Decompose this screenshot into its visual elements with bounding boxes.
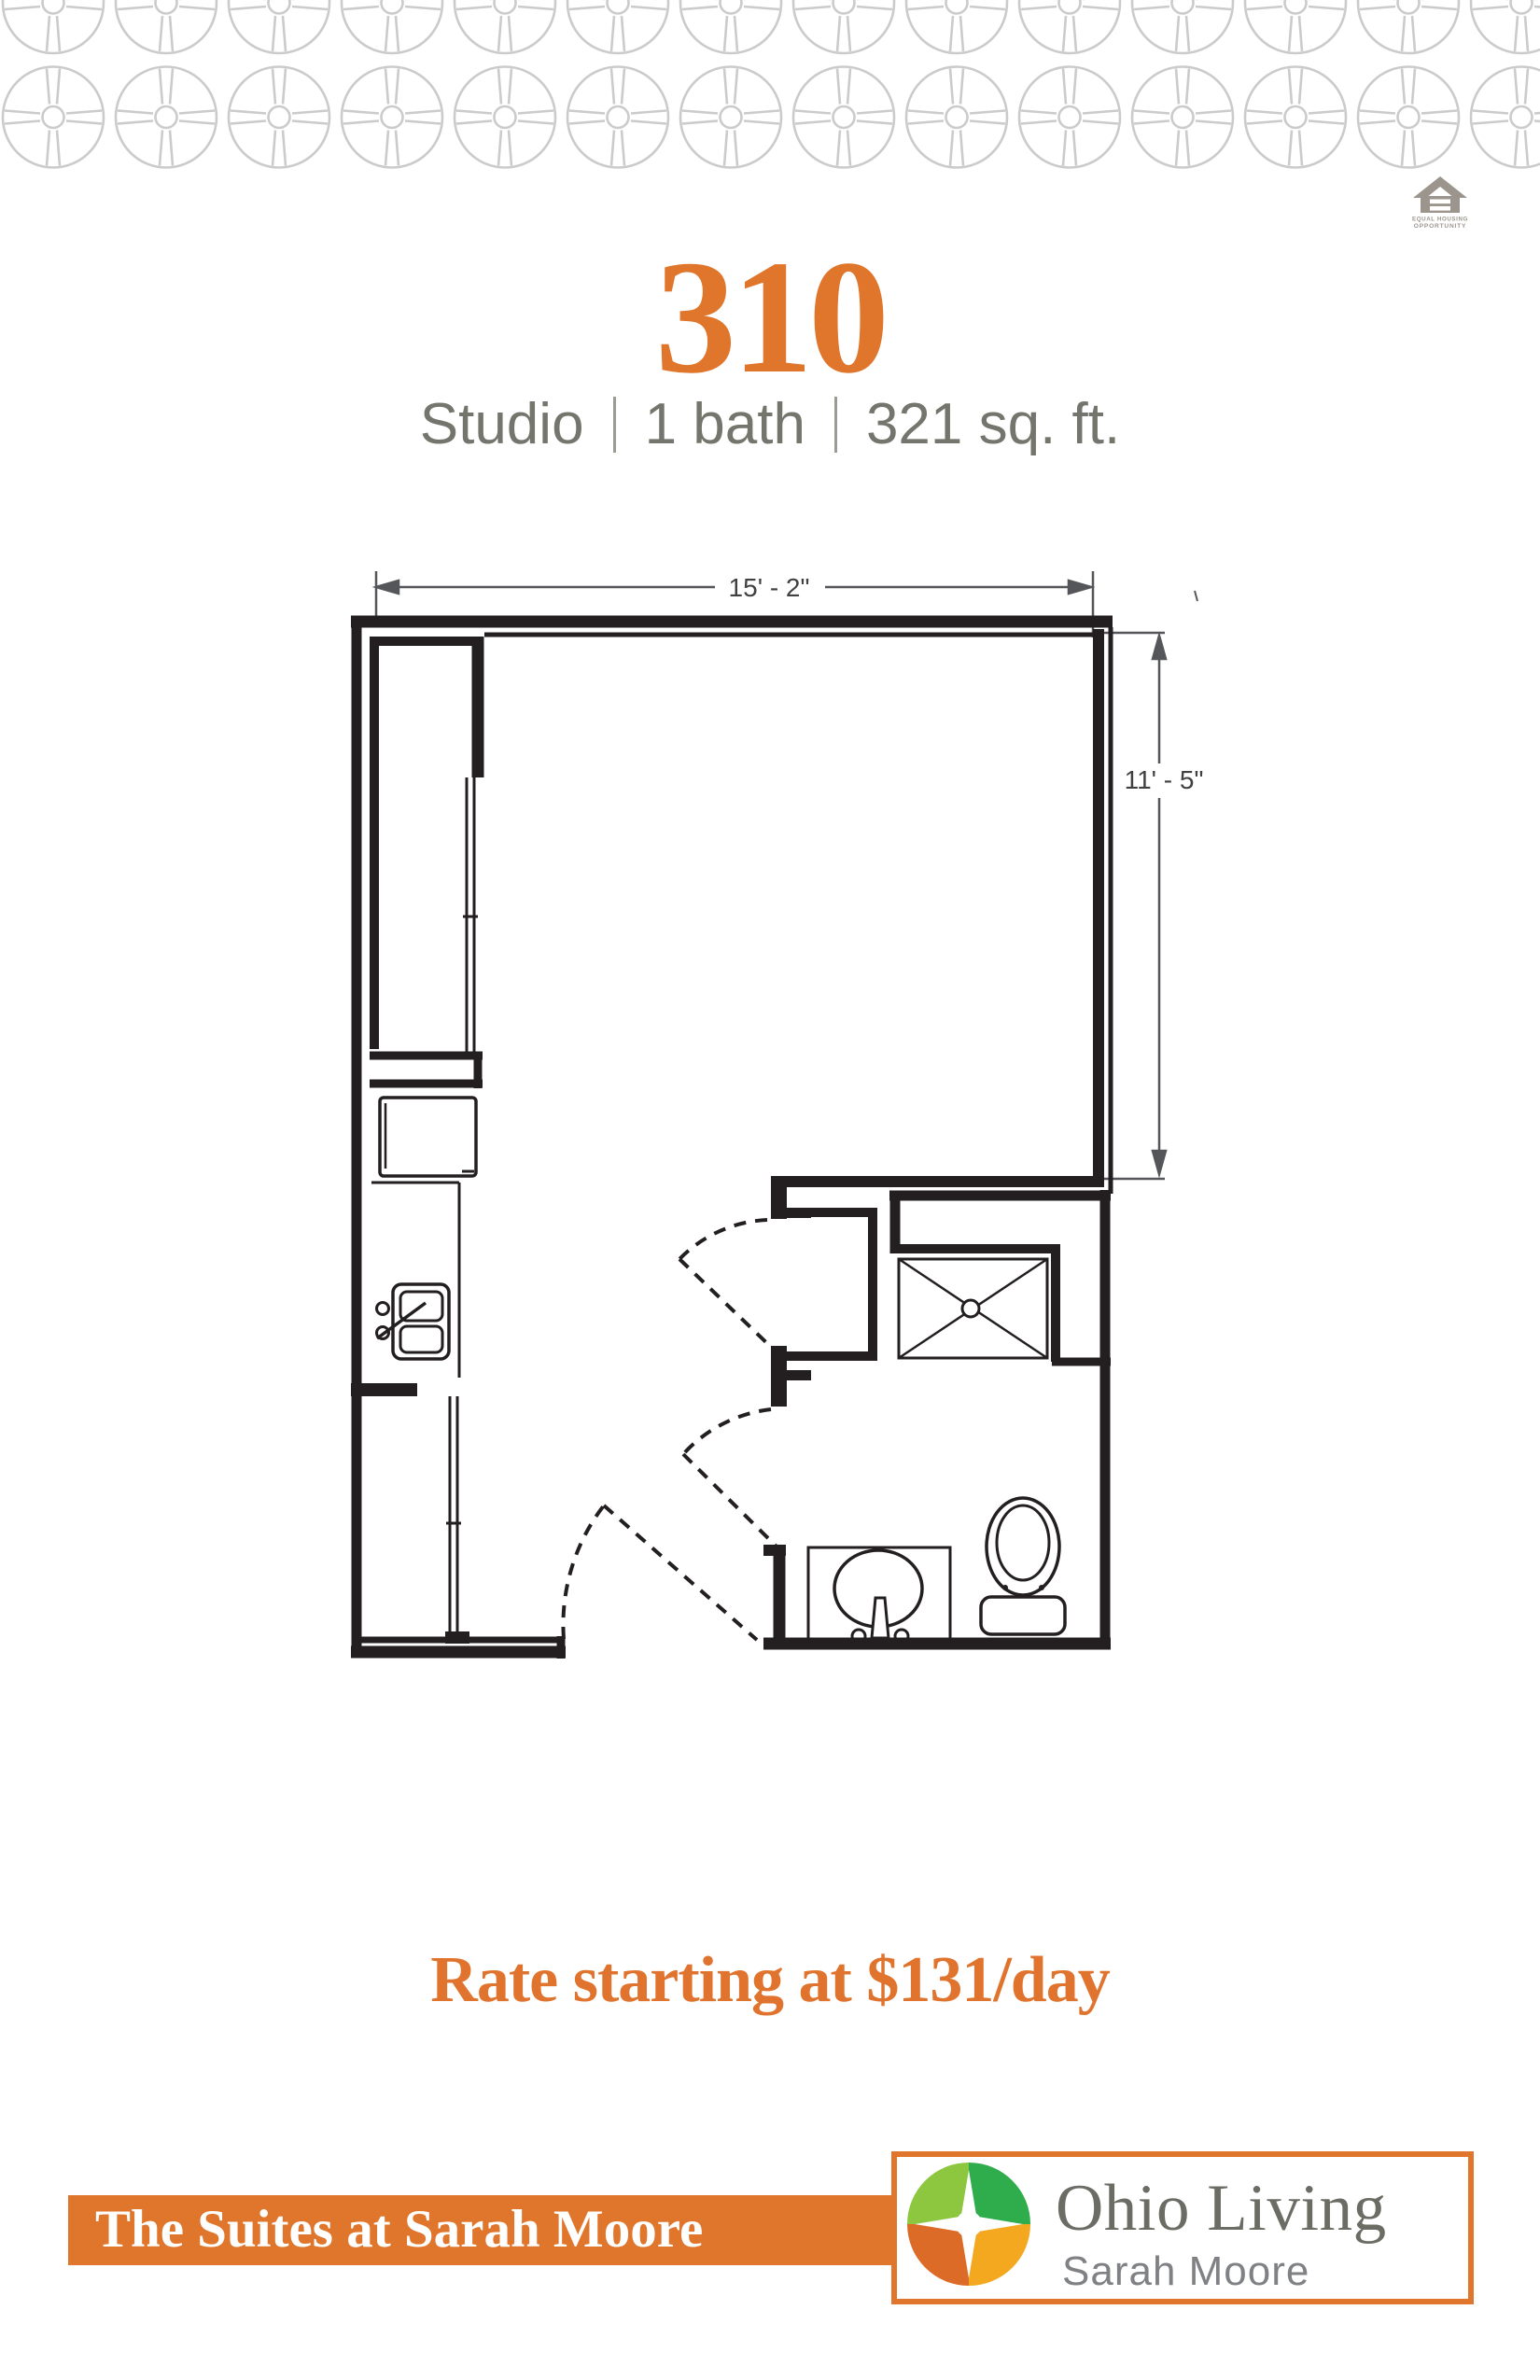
unit-specs: Studio1 bath321 sq. ft.: [0, 385, 1540, 464]
pattern-row-bottom: [3, 67, 1540, 168]
entry-door-leaf: [604, 1505, 757, 1640]
decorative-pattern: [0, 0, 1540, 173]
footer-bar: The Suites at Sarah Moore: [68, 2195, 894, 2265]
eho-text-line1: EQUAL HOUSING: [1412, 217, 1468, 223]
kitchen-sink-icon: [377, 1284, 450, 1359]
width-dimension-label: 15' - 2": [729, 573, 810, 602]
closet-door-leaf: [679, 1259, 774, 1350]
dimension-lines: [376, 571, 1197, 1179]
closet-door-swing: [679, 1220, 767, 1259]
eho-text-line2: OPPORTUNITY: [1414, 223, 1466, 230]
entry-door-swing: [563, 1505, 604, 1639]
unit-number: 310: [0, 235, 1540, 399]
rate-text: Rate starting at $131/day: [0, 1941, 1540, 2020]
closet-doors: [446, 777, 478, 1633]
refrigerator-icon: [380, 1098, 476, 1176]
community-name: The Suites at Sarah Moore: [68, 2195, 894, 2263]
counter: [371, 1183, 459, 1378]
bathroom-door-swing: [683, 1409, 771, 1454]
equal-housing-logo: EQUAL HOUSING OPPORTUNITY: [1407, 172, 1473, 231]
spec-area: 321 sq. ft.: [866, 392, 1120, 456]
door-swings: [563, 1220, 778, 1640]
brand-location: Sarah Moore: [1062, 2251, 1309, 2292]
separator: [613, 397, 616, 453]
spec-type: Studio: [420, 392, 584, 456]
pattern-row-top: [3, 0, 1540, 53]
separator: [834, 397, 837, 453]
spec-bath: 1 bath: [645, 392, 805, 456]
brand-name: Ohio Living: [1056, 2176, 1387, 2242]
shower-icon: [899, 1259, 1047, 1358]
door-jambs: [445, 1176, 811, 1644]
brand-logo: Ohio Living Sarah Moore: [891, 2151, 1474, 2304]
vanity-sink-icon: [808, 1547, 950, 1643]
flyer-page: EQUAL HOUSING OPPORTUNITY 310 Studio1 ba…: [0, 0, 1540, 2380]
bathroom-door-leaf: [683, 1454, 778, 1548]
bathroom: [808, 1259, 1065, 1643]
floor-plan: 15' - 2" 11' - 5": [308, 537, 1223, 1694]
brand-mark-icon: [907, 2163, 1030, 2286]
toilet-icon: [981, 1498, 1065, 1634]
height-dimension-label: 11' - 5": [1125, 765, 1204, 794]
kitchen: [371, 1098, 476, 1378]
